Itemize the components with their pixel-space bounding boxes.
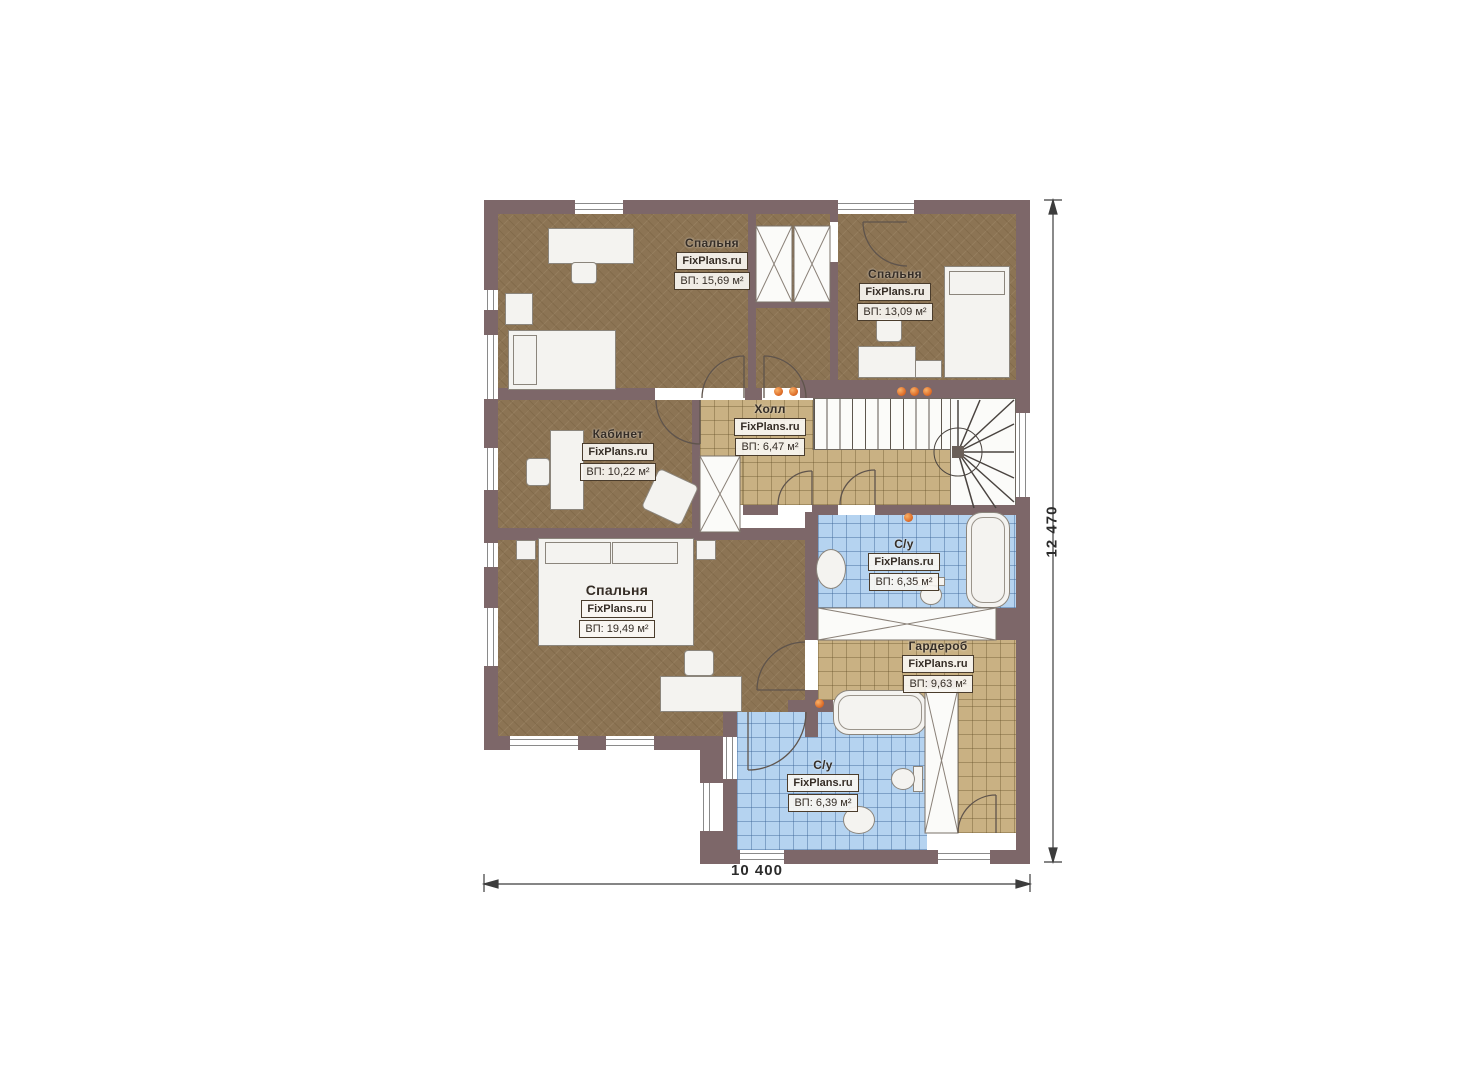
chair [684, 650, 714, 676]
watermark: FixPlans.ru [676, 252, 747, 270]
socket-dot [815, 699, 824, 708]
wall-exterior-top [484, 200, 1030, 214]
shelf [505, 293, 533, 325]
watermark: FixPlans.ru [581, 600, 652, 618]
room-area: ВП: 15,69 м² [674, 272, 749, 290]
pillow [949, 271, 1005, 295]
room-area: ВП: 9,63 м² [903, 675, 972, 693]
room-area: ВП: 6,47 м² [735, 438, 804, 456]
room-name: С/у [894, 537, 914, 551]
wall-interior [830, 214, 838, 222]
wall-interior [743, 505, 778, 515]
room-area: ВП: 6,39 м² [788, 794, 857, 812]
socket-dot [897, 387, 906, 396]
window [484, 335, 498, 399]
floor-corridor [743, 450, 955, 505]
stair-winder [950, 398, 1016, 510]
room-name: Спальня [868, 267, 922, 281]
dimension-height: 12 470 [1044, 472, 1061, 592]
room-area: ВП: 10,22 м² [580, 463, 655, 481]
wall-exterior-right [1016, 200, 1030, 864]
socket-dot [904, 513, 913, 522]
room-name: Гардероб [908, 639, 967, 653]
wall-interior [745, 388, 762, 400]
nightstand [516, 540, 536, 560]
window [838, 200, 914, 214]
bathtub-inner [971, 517, 1005, 603]
watermark: FixPlans.ru [859, 283, 930, 301]
room-label-bathroom-2: С/у FixPlans.ru ВП: 6,39 м² [761, 758, 885, 812]
desk [858, 346, 916, 378]
room-label-bathroom-1: С/у FixPlans.ru ВП: 6,35 м² [842, 537, 966, 591]
watermark: FixPlans.ru [734, 418, 805, 436]
room-name: Кабинет [593, 427, 644, 441]
room-area: ВП: 13,09 м² [857, 303, 932, 321]
window [723, 737, 737, 779]
wall-interior [692, 400, 700, 535]
floor-wardrobe-column [958, 700, 1016, 833]
window [575, 200, 623, 214]
window [484, 290, 498, 310]
chair [571, 262, 597, 284]
socket-dot [910, 387, 919, 396]
nightstand [914, 360, 942, 378]
chair [876, 318, 902, 342]
room-area: ВП: 19,49 м² [579, 620, 654, 638]
window [510, 736, 578, 750]
wall-interior [756, 302, 830, 308]
room-area: ВП: 6,35 м² [869, 573, 938, 591]
window [484, 448, 498, 490]
desk [548, 228, 634, 264]
dimension-width: 10 400 [697, 862, 817, 879]
pillow [612, 542, 678, 564]
window [938, 850, 990, 864]
room-name: Спальня [586, 582, 649, 598]
bathtub-inner [838, 695, 922, 730]
socket-dot [789, 387, 798, 396]
room-name: С/у [813, 758, 833, 772]
room-label-hall: Холл FixPlans.ru ВП: 6,47 м² [708, 402, 832, 456]
watermark: FixPlans.ru [582, 443, 653, 461]
watermark: FixPlans.ru [787, 774, 858, 792]
wall-interior [805, 690, 818, 737]
socket-dot [923, 387, 932, 396]
room-label-bedroom-2: Спальня FixPlans.ru ВП: 13,09 м² [833, 267, 957, 321]
floor-plan-canvas: Спальня FixPlans.ru ВП: 15,69 м² Спальня… [0, 0, 1474, 1080]
window [484, 543, 498, 567]
wall-interior [996, 608, 1016, 640]
watermark: FixPlans.ru [902, 655, 973, 673]
window [700, 783, 723, 831]
watermark: FixPlans.ru [868, 553, 939, 571]
desk [660, 676, 742, 712]
pillow [545, 542, 611, 564]
room-name: Спальня [685, 236, 739, 250]
room-label-office: Кабинет FixPlans.ru ВП: 10,22 м² [556, 427, 680, 481]
wall-interior [788, 700, 833, 712]
chair [526, 458, 550, 486]
room-label-bedroom-1: Спальня FixPlans.ru ВП: 15,69 м² [650, 236, 774, 290]
room-name: Холл [754, 402, 785, 416]
window [606, 736, 654, 750]
toilet-bowl [891, 768, 915, 790]
nightstand [696, 540, 716, 560]
window [1016, 413, 1030, 497]
room-label-bedroom-3: Спальня FixPlans.ru ВП: 19,49 м² [555, 582, 679, 638]
room-label-wardrobe: Гардероб FixPlans.ru ВП: 9,63 м² [876, 639, 1000, 693]
window [484, 608, 498, 666]
pillow [513, 335, 537, 385]
socket-dot [774, 387, 783, 396]
stair-flight [813, 398, 953, 450]
